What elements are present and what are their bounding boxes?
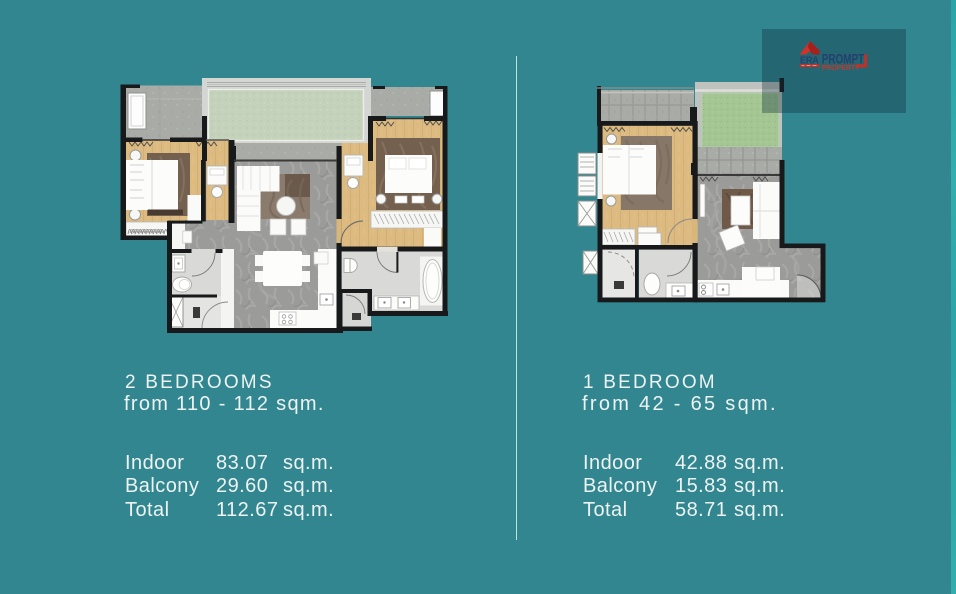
svg-text:PROPERTY: PROPERTY	[822, 63, 860, 72]
